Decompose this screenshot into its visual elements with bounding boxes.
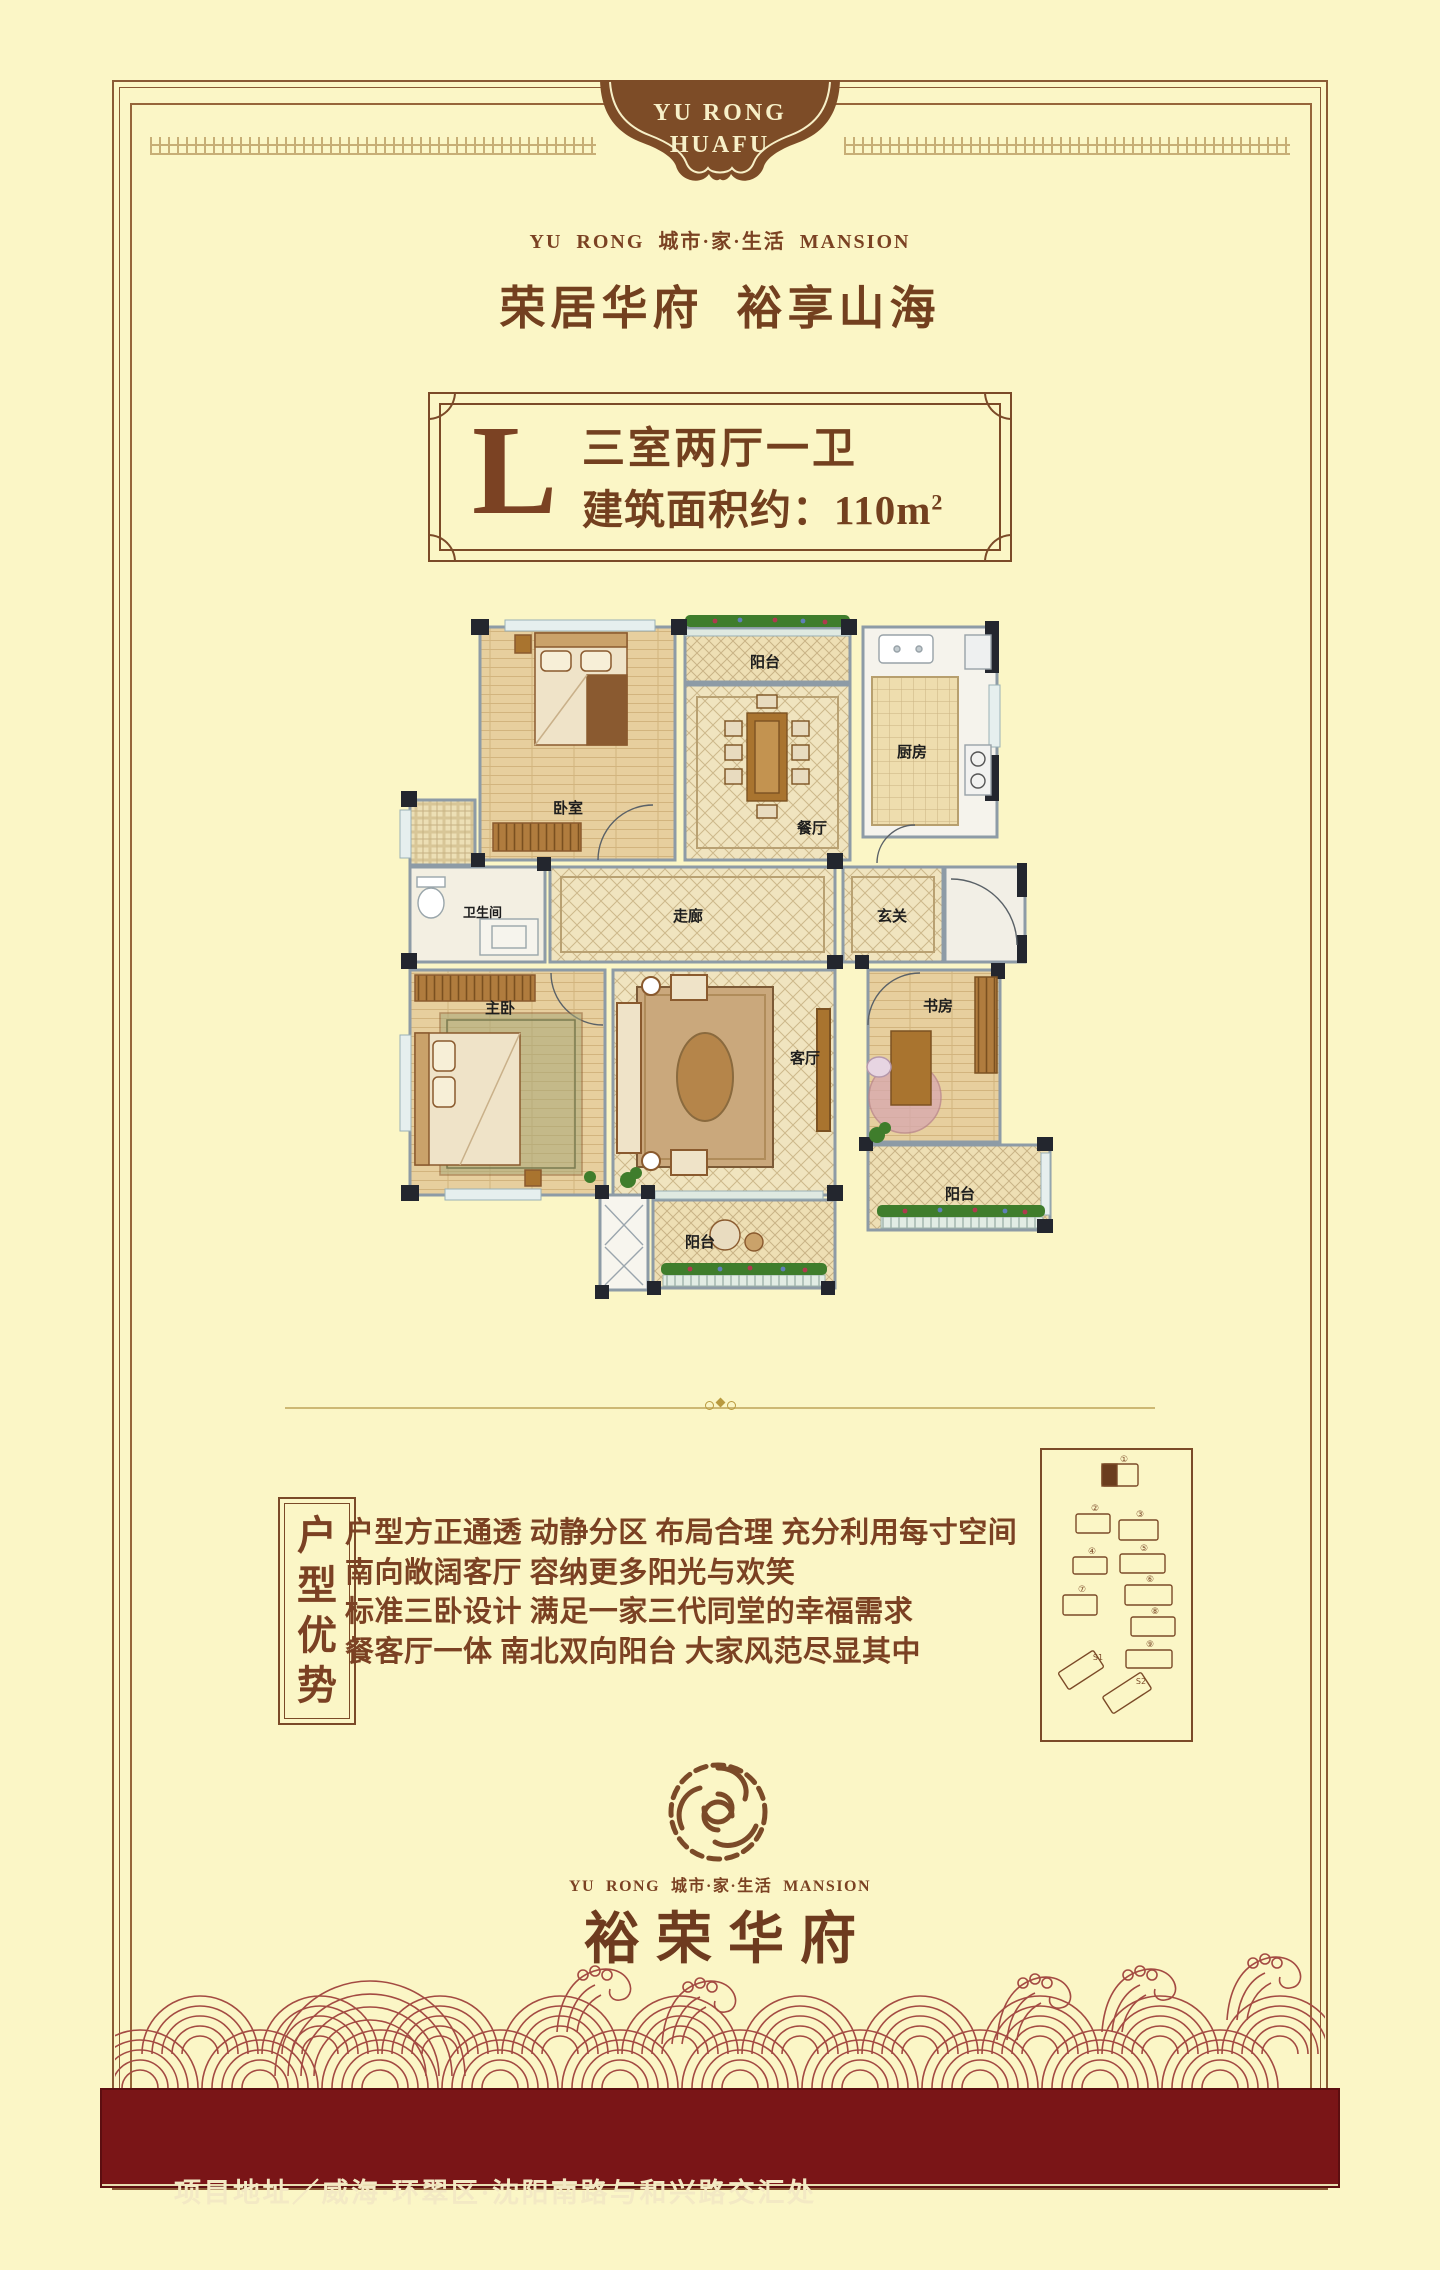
advantages-char: 型 <box>297 1564 337 1608</box>
advantage-line: 南向敞阔客厅 容纳更多阳光与欢笑 <box>345 1554 1045 1594</box>
svg-text:④: ④ <box>1088 1547 1096 1557</box>
label-bedroom: 卧室 <box>553 799 583 817</box>
label-bathroom: 卫生间 <box>463 905 502 920</box>
fridge <box>965 635 991 669</box>
footer-address: 项目地址／威海·环翠区·沈阳南路与和兴路交汇处 <box>174 2175 817 2212</box>
room-entry <box>945 867 1025 962</box>
label-living: 客厅 <box>789 1049 820 1067</box>
advantage-line: 户型方正通透 动静分区 布局合理 充分利用每寸空间 <box>345 1514 1045 1554</box>
svg-text:②: ② <box>1091 1504 1099 1514</box>
svg-text:⑧: ⑧ <box>1151 1607 1159 1617</box>
svg-text:⑦: ⑦ <box>1078 1585 1086 1595</box>
unit-layout: 三室两厅一卫 <box>582 414 858 476</box>
label-balcony-east: 阳台 <box>945 1185 975 1203</box>
header-headline: 荣居华府 裕享山海 <box>0 272 1440 338</box>
svg-text:S2: S2 <box>1136 1677 1146 1686</box>
label-dining: 餐厅 <box>797 819 827 837</box>
footer-bar: 项目地址／威海·环翠区·沈阳南路与和兴路交汇处 开 发 商／威海荣裕房地产开发有… <box>100 2088 1340 2188</box>
wave-decoration <box>115 1926 1325 2088</box>
brand-badge: YU RONG HUAFU <box>598 80 842 192</box>
label-kitchen: 厨房 <box>897 743 927 761</box>
room-shower <box>410 800 475 865</box>
label-balcony-north: 阳台 <box>750 653 780 671</box>
label-master: 主卧 <box>485 999 515 1017</box>
logo-tagline: YU RONG 城市·家·生活 MANSION <box>0 1872 1440 1896</box>
site-map: ① ② ③ ④ ⑤ ⑥ ⑦ ⑧ ⑨ S1 S2 <box>1040 1448 1193 1742</box>
flyer-page: YU RONG HUAFU YU RONG 城市·家·生活 MANSION 荣居… <box>0 0 1440 2270</box>
advantages-char: 势 <box>297 1664 337 1708</box>
svg-text:⑨: ⑨ <box>1146 1640 1154 1650</box>
advantages-char: 优 <box>297 1614 337 1658</box>
unit-letter: L <box>472 390 557 550</box>
badge-shape <box>600 80 840 181</box>
label-foyer: 玄关 <box>877 907 907 925</box>
svg-text:⑥: ⑥ <box>1146 1575 1154 1585</box>
label-study: 书房 <box>923 997 953 1015</box>
footer-text: 项目地址／威海·环翠区·沈阳南路与和兴路交汇处 开 发 商／威海荣裕房地产开发有… <box>174 2101 817 2270</box>
vanity <box>480 919 538 955</box>
unit-card: L 三室两厅一卫 建筑面积约：110m2 <box>428 392 1012 562</box>
advantage-line: 餐客厅一体 南北双向阳台 大家风范尽显其中 <box>345 1633 1045 1673</box>
svg-text:S1: S1 <box>1093 1653 1103 1662</box>
svg-text:①: ① <box>1120 1455 1128 1465</box>
advantages-char: 户 <box>297 1514 337 1558</box>
svg-text:③: ③ <box>1136 1510 1144 1520</box>
floorplan: 阳台 卧室 餐厅 厨房 卫生间 走廊 玄关 主卧 客厅 书房 阳台 阳台 <box>385 605 1065 1345</box>
advantage-line: 标准三卧设计 满足一家三代同堂的幸福需求 <box>345 1593 1045 1633</box>
header-tagline: YU RONG 城市·家·生活 MANSION <box>0 225 1440 254</box>
label-balcony-south: 阳台 <box>685 1233 715 1251</box>
kitchen-sink <box>879 635 933 663</box>
label-corridor: 走廊 <box>673 907 703 925</box>
ornamental-band-left <box>150 137 596 155</box>
divider-ornament <box>700 1396 740 1414</box>
toilet <box>418 888 444 918</box>
unit-area: 建筑面积约：110m2 <box>582 476 943 536</box>
svg-text:⑤: ⑤ <box>1140 1544 1148 1554</box>
brand-emblem-icon <box>662 1756 774 1868</box>
toilet-tank <box>417 877 445 887</box>
badge-line1: YU RONG <box>653 100 787 126</box>
advantages-lines: 户型方正通透 动静分区 布局合理 充分利用每寸空间 南向敞阔客厅 容纳更多阳光与… <box>345 1514 1045 1672</box>
badge-line2: HUAFU <box>670 132 770 158</box>
ornamental-band-right <box>844 137 1290 155</box>
